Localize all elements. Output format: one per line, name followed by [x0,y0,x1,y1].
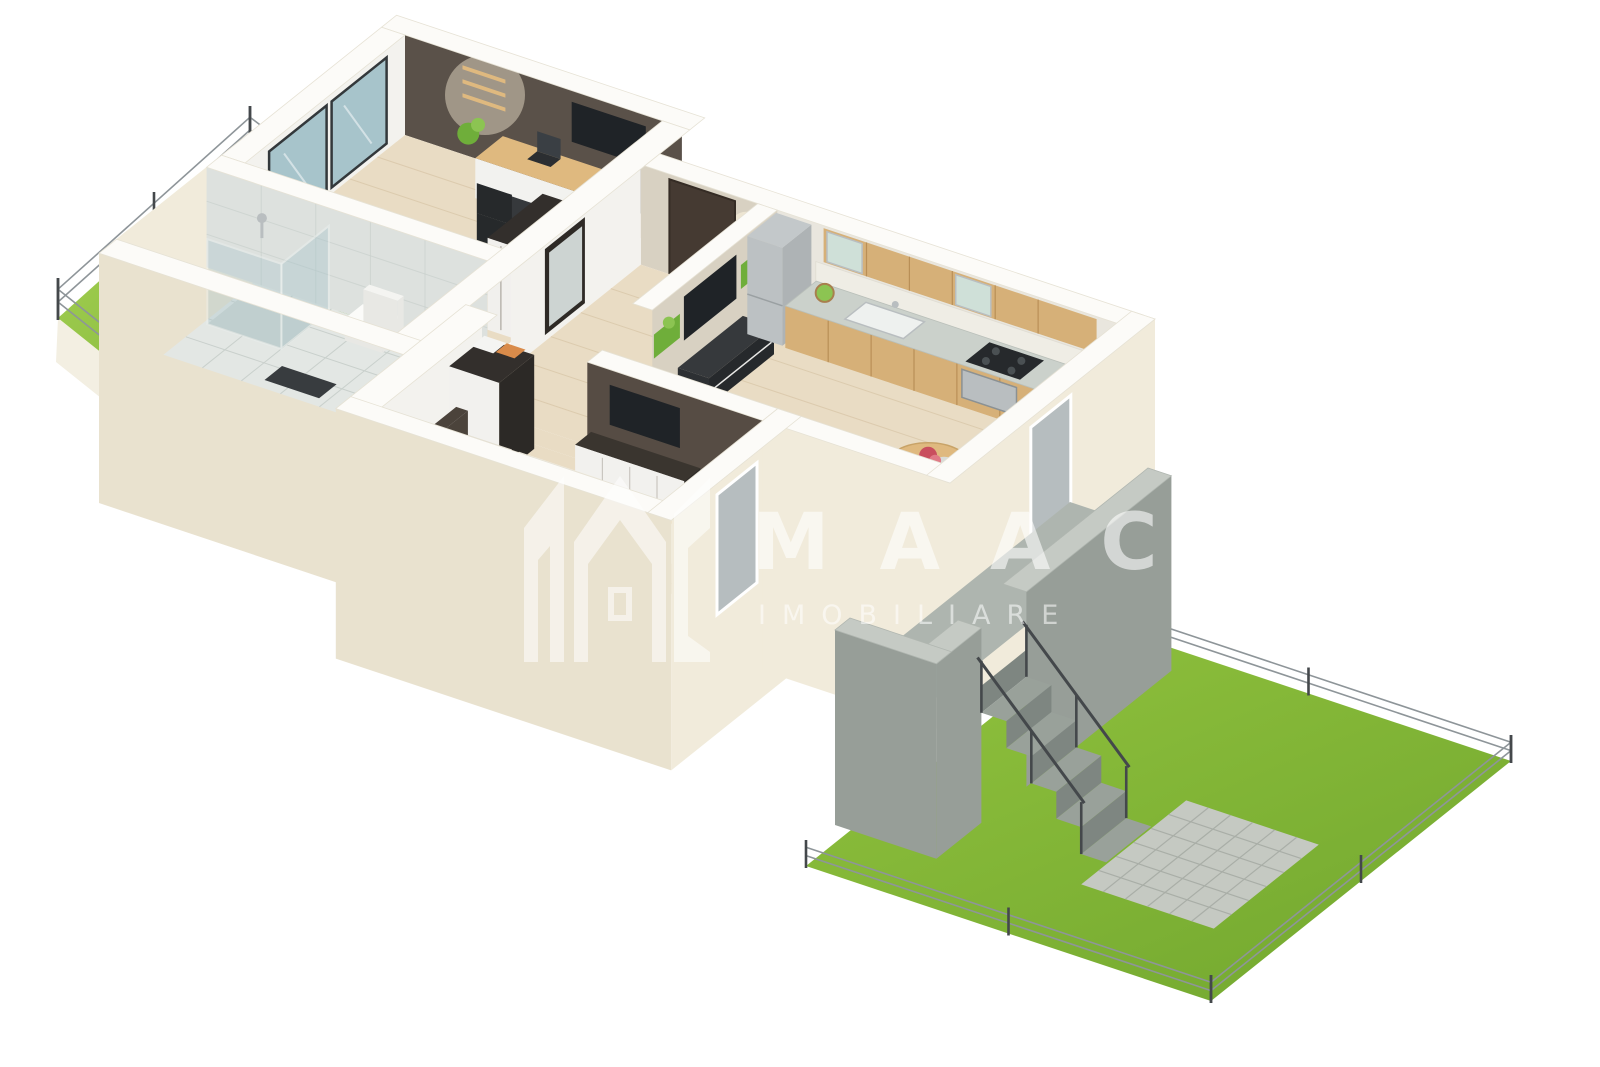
floorplan-3d-render: MAAC IMOBILIARE [0,0,1600,1067]
burner [982,357,990,365]
faucet [892,301,899,308]
vegetable-basket [816,284,834,302]
office-plant [471,118,485,132]
plant-leaf [663,317,675,329]
terrace-parapet-face [835,630,936,859]
burner [992,347,1000,355]
burner [1017,357,1025,365]
fridge-front [747,236,782,346]
scene-canvas [0,0,1600,1067]
terrace-parapet-face [936,628,981,859]
burner [1007,367,1015,375]
